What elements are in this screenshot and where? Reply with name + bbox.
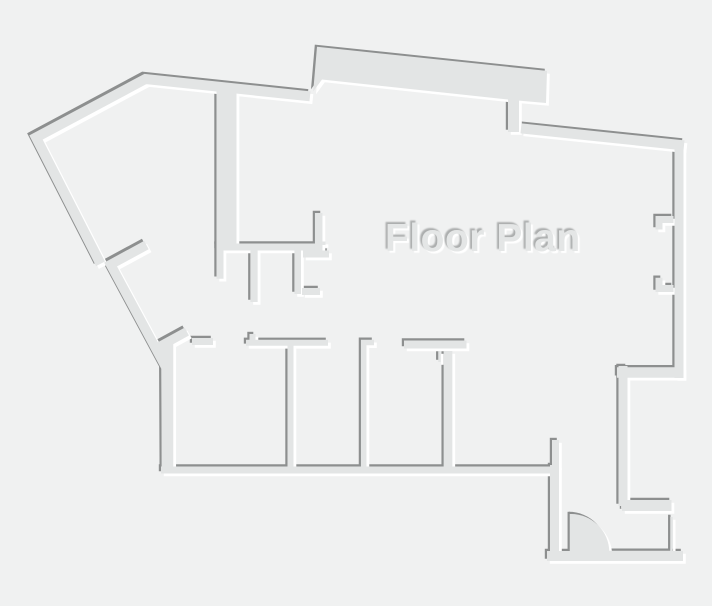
svg-text:Floor Plan: Floor Plan	[385, 217, 581, 260]
